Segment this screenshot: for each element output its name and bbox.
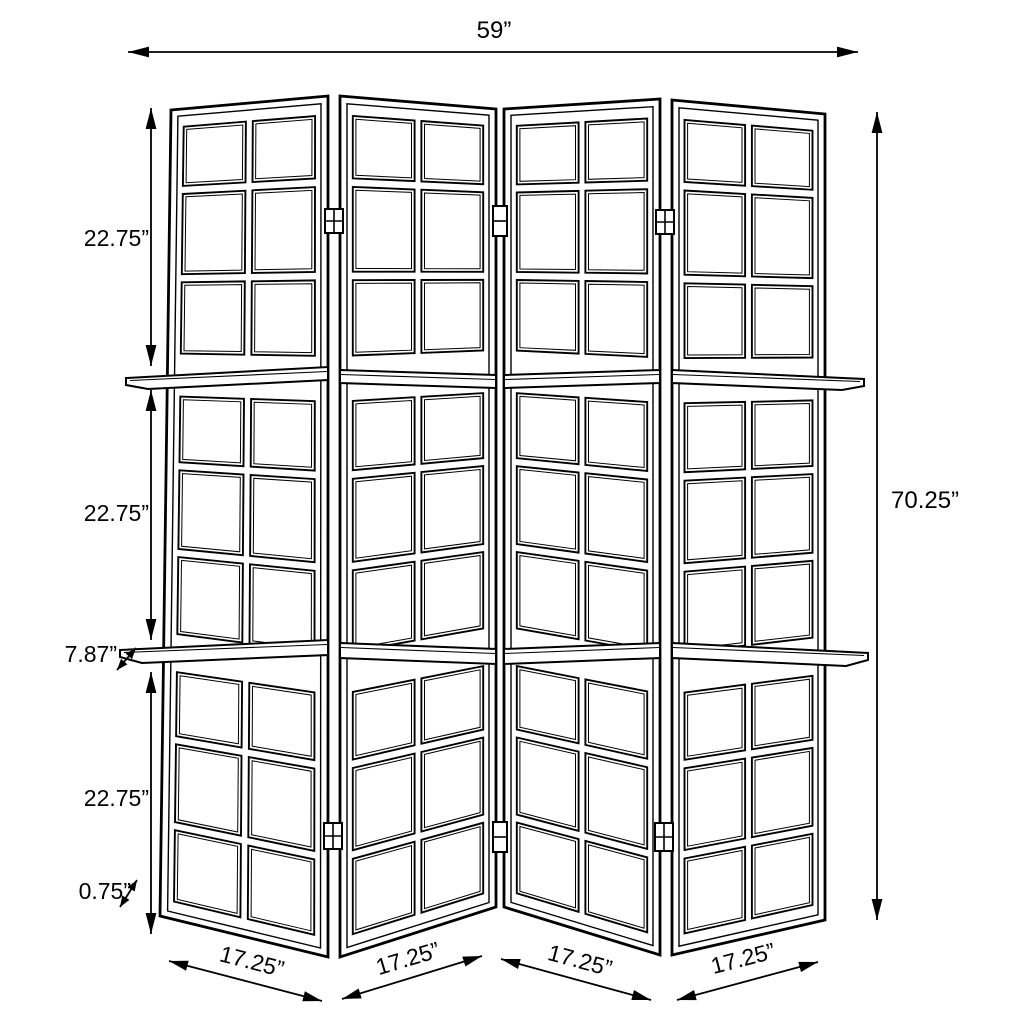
top-section-height-label: 22.75” [84,225,149,251]
bottom-frame-label: 0.75” [79,878,131,904]
panel3-width-label: 17.25” [545,939,615,981]
room-divider-dimension-diagram: 59” 22.75” 22.75” 22.75” 7.87” 0.75” 70.… [0,0,1024,1024]
bottom-section-height-label: 22.75” [84,785,149,811]
dimension-diagram-page: 59” 22.75” 22.75” 22.75” 7.87” 0.75” 70.… [0,0,1024,1024]
middle-section-height-label: 22.75” [84,500,149,526]
overall-height-label: 70.25” [891,487,959,514]
overall-width-label: 59” [477,17,512,44]
shelf-depth-label: 7.87” [65,641,117,667]
